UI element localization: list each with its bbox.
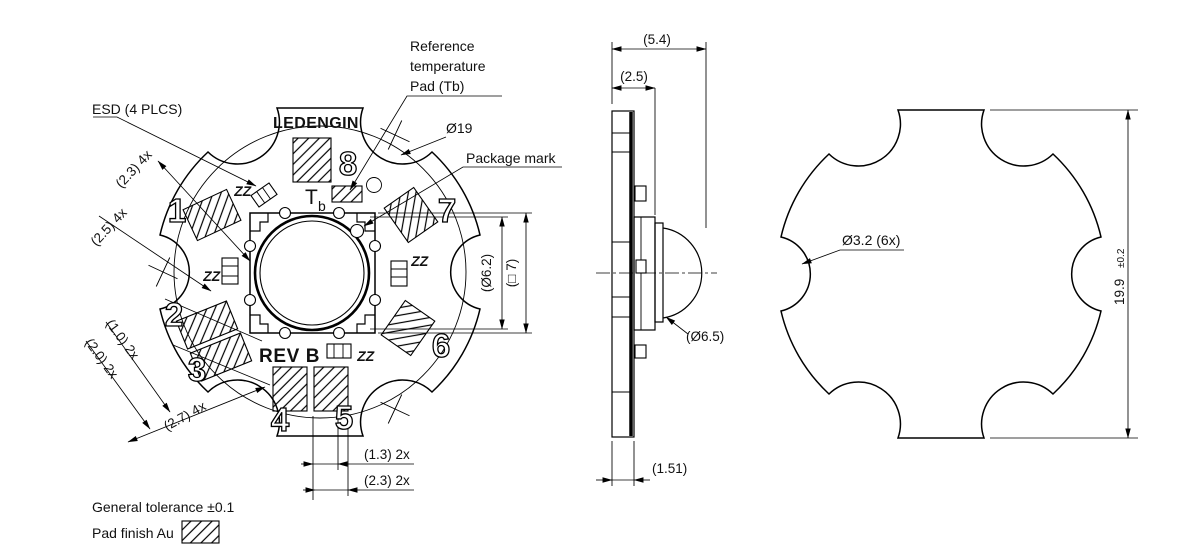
logo-text: LEDENGIN <box>273 115 359 132</box>
package-mark-callout: Package mark <box>466 150 556 166</box>
side-view: (5.4) (2.5) (Ø6.5) (1.51) <box>596 32 724 486</box>
drawing-canvas: LEDENGIN REV B T b 1 2 3 4 5 6 7 8 ZZ ZZ… <box>0 0 1196 559</box>
pad-number-1: 1 <box>168 192 186 229</box>
top-view: LEDENGIN REV B T b 1 2 3 4 5 6 7 8 ZZ ZZ… <box>82 38 562 500</box>
esd-component <box>251 183 277 207</box>
dim-23-4x: (2.3) 4x <box>113 147 155 191</box>
ref-temp-callout-line3: Pad (Tb) <box>410 78 464 94</box>
legend: General tolerance ±0.1 Pad finish Au <box>92 499 235 543</box>
zz-mark: ZZ <box>233 183 253 199</box>
tb-label-sub: b <box>318 198 326 214</box>
esd-component-side <box>636 260 646 273</box>
dim-d65: (Ø6.5) <box>686 329 724 344</box>
general-tolerance-note: General tolerance ±0.1 <box>92 499 235 515</box>
dim-23-2x: (2.3) 2x <box>364 473 410 488</box>
pad-number-2: 2 <box>165 296 183 333</box>
led-package <box>245 208 381 339</box>
pad-number-4: 4 <box>271 401 290 438</box>
dim-d62: (Ø6.2) <box>479 254 494 292</box>
zz-mark: ZZ <box>202 268 222 284</box>
board-segment-lines <box>612 133 630 392</box>
pad-number-6: 6 <box>432 327 450 364</box>
zz-mark: ZZ <box>356 348 376 364</box>
ref-temp-callout-line2: temperature <box>410 58 486 74</box>
esd-component-side <box>635 345 646 358</box>
outline-dimensions <box>802 110 1138 438</box>
dim-27-4x: (2.7) 4x <box>161 398 209 433</box>
esd-component <box>327 344 351 358</box>
pad-number-5: 5 <box>335 399 353 436</box>
board-outline-only <box>781 110 1101 438</box>
pad-number-3: 3 <box>188 351 206 388</box>
esd-callout: ESD (4 PLCS) <box>92 101 182 117</box>
ref-temp-callout-line1: Reference <box>410 38 475 54</box>
dim-199-tol: ±0.2 <box>1116 248 1127 268</box>
dim-54: (5.4) <box>643 32 671 47</box>
dia19-label: Ø19 <box>446 120 473 136</box>
tb-pad <box>332 186 362 202</box>
outline-view: Ø3.2 (6x) 19.9 ±0.2 <box>781 110 1138 438</box>
pad-number-7: 7 <box>438 192 456 229</box>
fiducial-cross-icon <box>374 114 417 157</box>
package-mark-dot <box>351 225 364 238</box>
dim-199: 19.9 <box>1112 279 1127 305</box>
rev-text: REV B <box>259 346 320 367</box>
drawing-page: LEDENGIN REV B T b 1 2 3 4 5 6 7 8 ZZ ZZ… <box>0 0 1196 559</box>
dim-25-4x: (2.5) 4x <box>88 205 130 249</box>
pad-finish-note: Pad finish Au <box>92 525 174 541</box>
via-hole <box>367 178 382 193</box>
pad-finish-swatch <box>182 521 219 543</box>
dim-d32: Ø3.2 (6x) <box>842 232 900 248</box>
dim-20-2x: (2.0) 2x <box>82 335 121 381</box>
dim-25: (2.5) <box>620 69 648 84</box>
fiducial-cross-icon <box>374 388 417 431</box>
pad-6-area <box>381 300 435 355</box>
zz-mark: ZZ <box>410 253 430 269</box>
dim-151: (1.51) <box>652 461 687 476</box>
esd-component <box>391 261 407 286</box>
dim-sq7: (□ 7) <box>504 259 519 287</box>
esd-component-side <box>635 186 646 201</box>
pad-7-area <box>384 187 438 242</box>
pad-8-area <box>293 138 331 182</box>
fiducial-cross-icon <box>142 251 185 294</box>
dim-13-2x: (1.3) 2x <box>364 447 410 462</box>
tb-label: T <box>305 186 318 209</box>
esd-component <box>222 258 238 284</box>
pad-number-8: 8 <box>339 145 357 182</box>
